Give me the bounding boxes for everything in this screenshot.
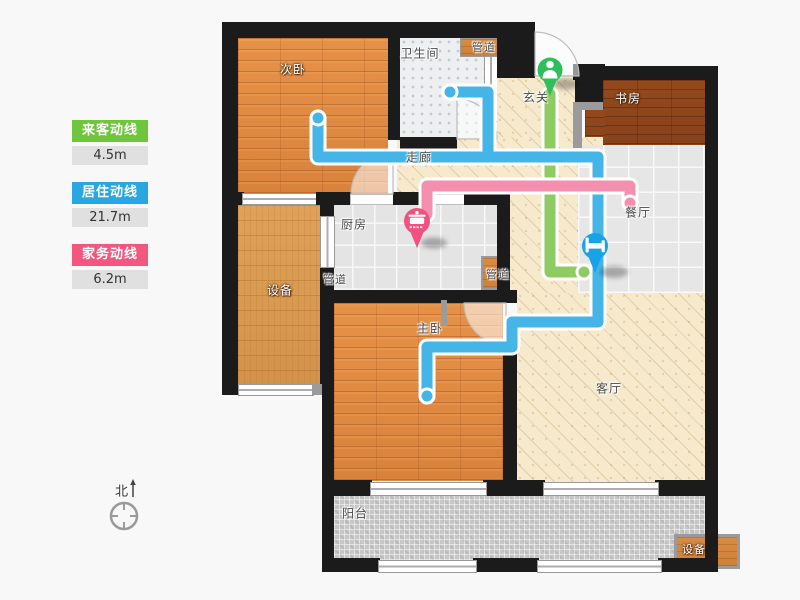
north-arrow-icon: [130, 479, 136, 497]
label-entry: 玄关: [523, 89, 549, 106]
plan-overlay: [0, 0, 800, 600]
label-equipment-bottom: 设备: [682, 541, 706, 557]
resident-endpoint: [420, 389, 434, 403]
label-bedroom2: 次卧: [280, 61, 306, 78]
label-dining: 餐厅: [625, 204, 651, 221]
label-duct-kitchen-left: 管道: [323, 271, 347, 287]
label-north: 北: [115, 481, 129, 500]
label-kitchen: 厨房: [341, 216, 367, 233]
visitor-endpoint: [577, 265, 591, 279]
label-bedroom1: 主卧: [417, 320, 443, 337]
label-duct-top: 管道: [472, 39, 496, 55]
label-balcony: 阳台: [342, 505, 368, 522]
pin-shadow: [600, 266, 628, 278]
pin-tail: [410, 231, 424, 248]
label-bathroom: 卫生间: [400, 45, 439, 62]
label-corridor: 走廊: [406, 149, 432, 166]
resident-endpoint: [443, 85, 457, 99]
floorplan-app: 来客动线 4.5m 居住动线 21.7m 家务动线 6.2m: [0, 0, 800, 600]
label-study: 书房: [615, 90, 641, 107]
label-duct-kitchen-right: 管道: [486, 266, 510, 282]
pin-shadow: [421, 238, 447, 249]
resident-endpoint: [311, 111, 325, 125]
label-equipment-left: 设备: [267, 282, 293, 299]
label-living: 客厅: [596, 380, 622, 397]
